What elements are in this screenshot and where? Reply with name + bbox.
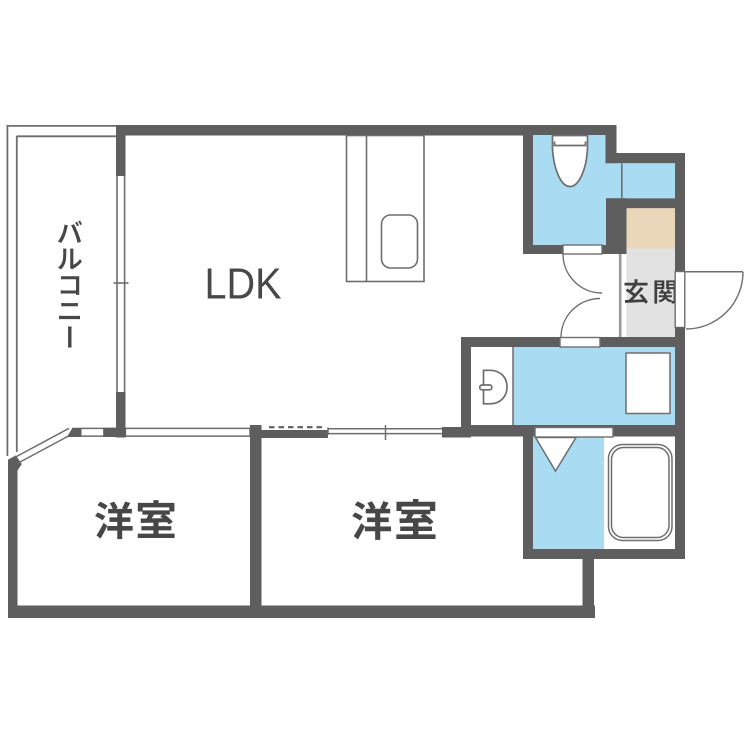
svg-text:LDK: LDK bbox=[205, 261, 282, 309]
